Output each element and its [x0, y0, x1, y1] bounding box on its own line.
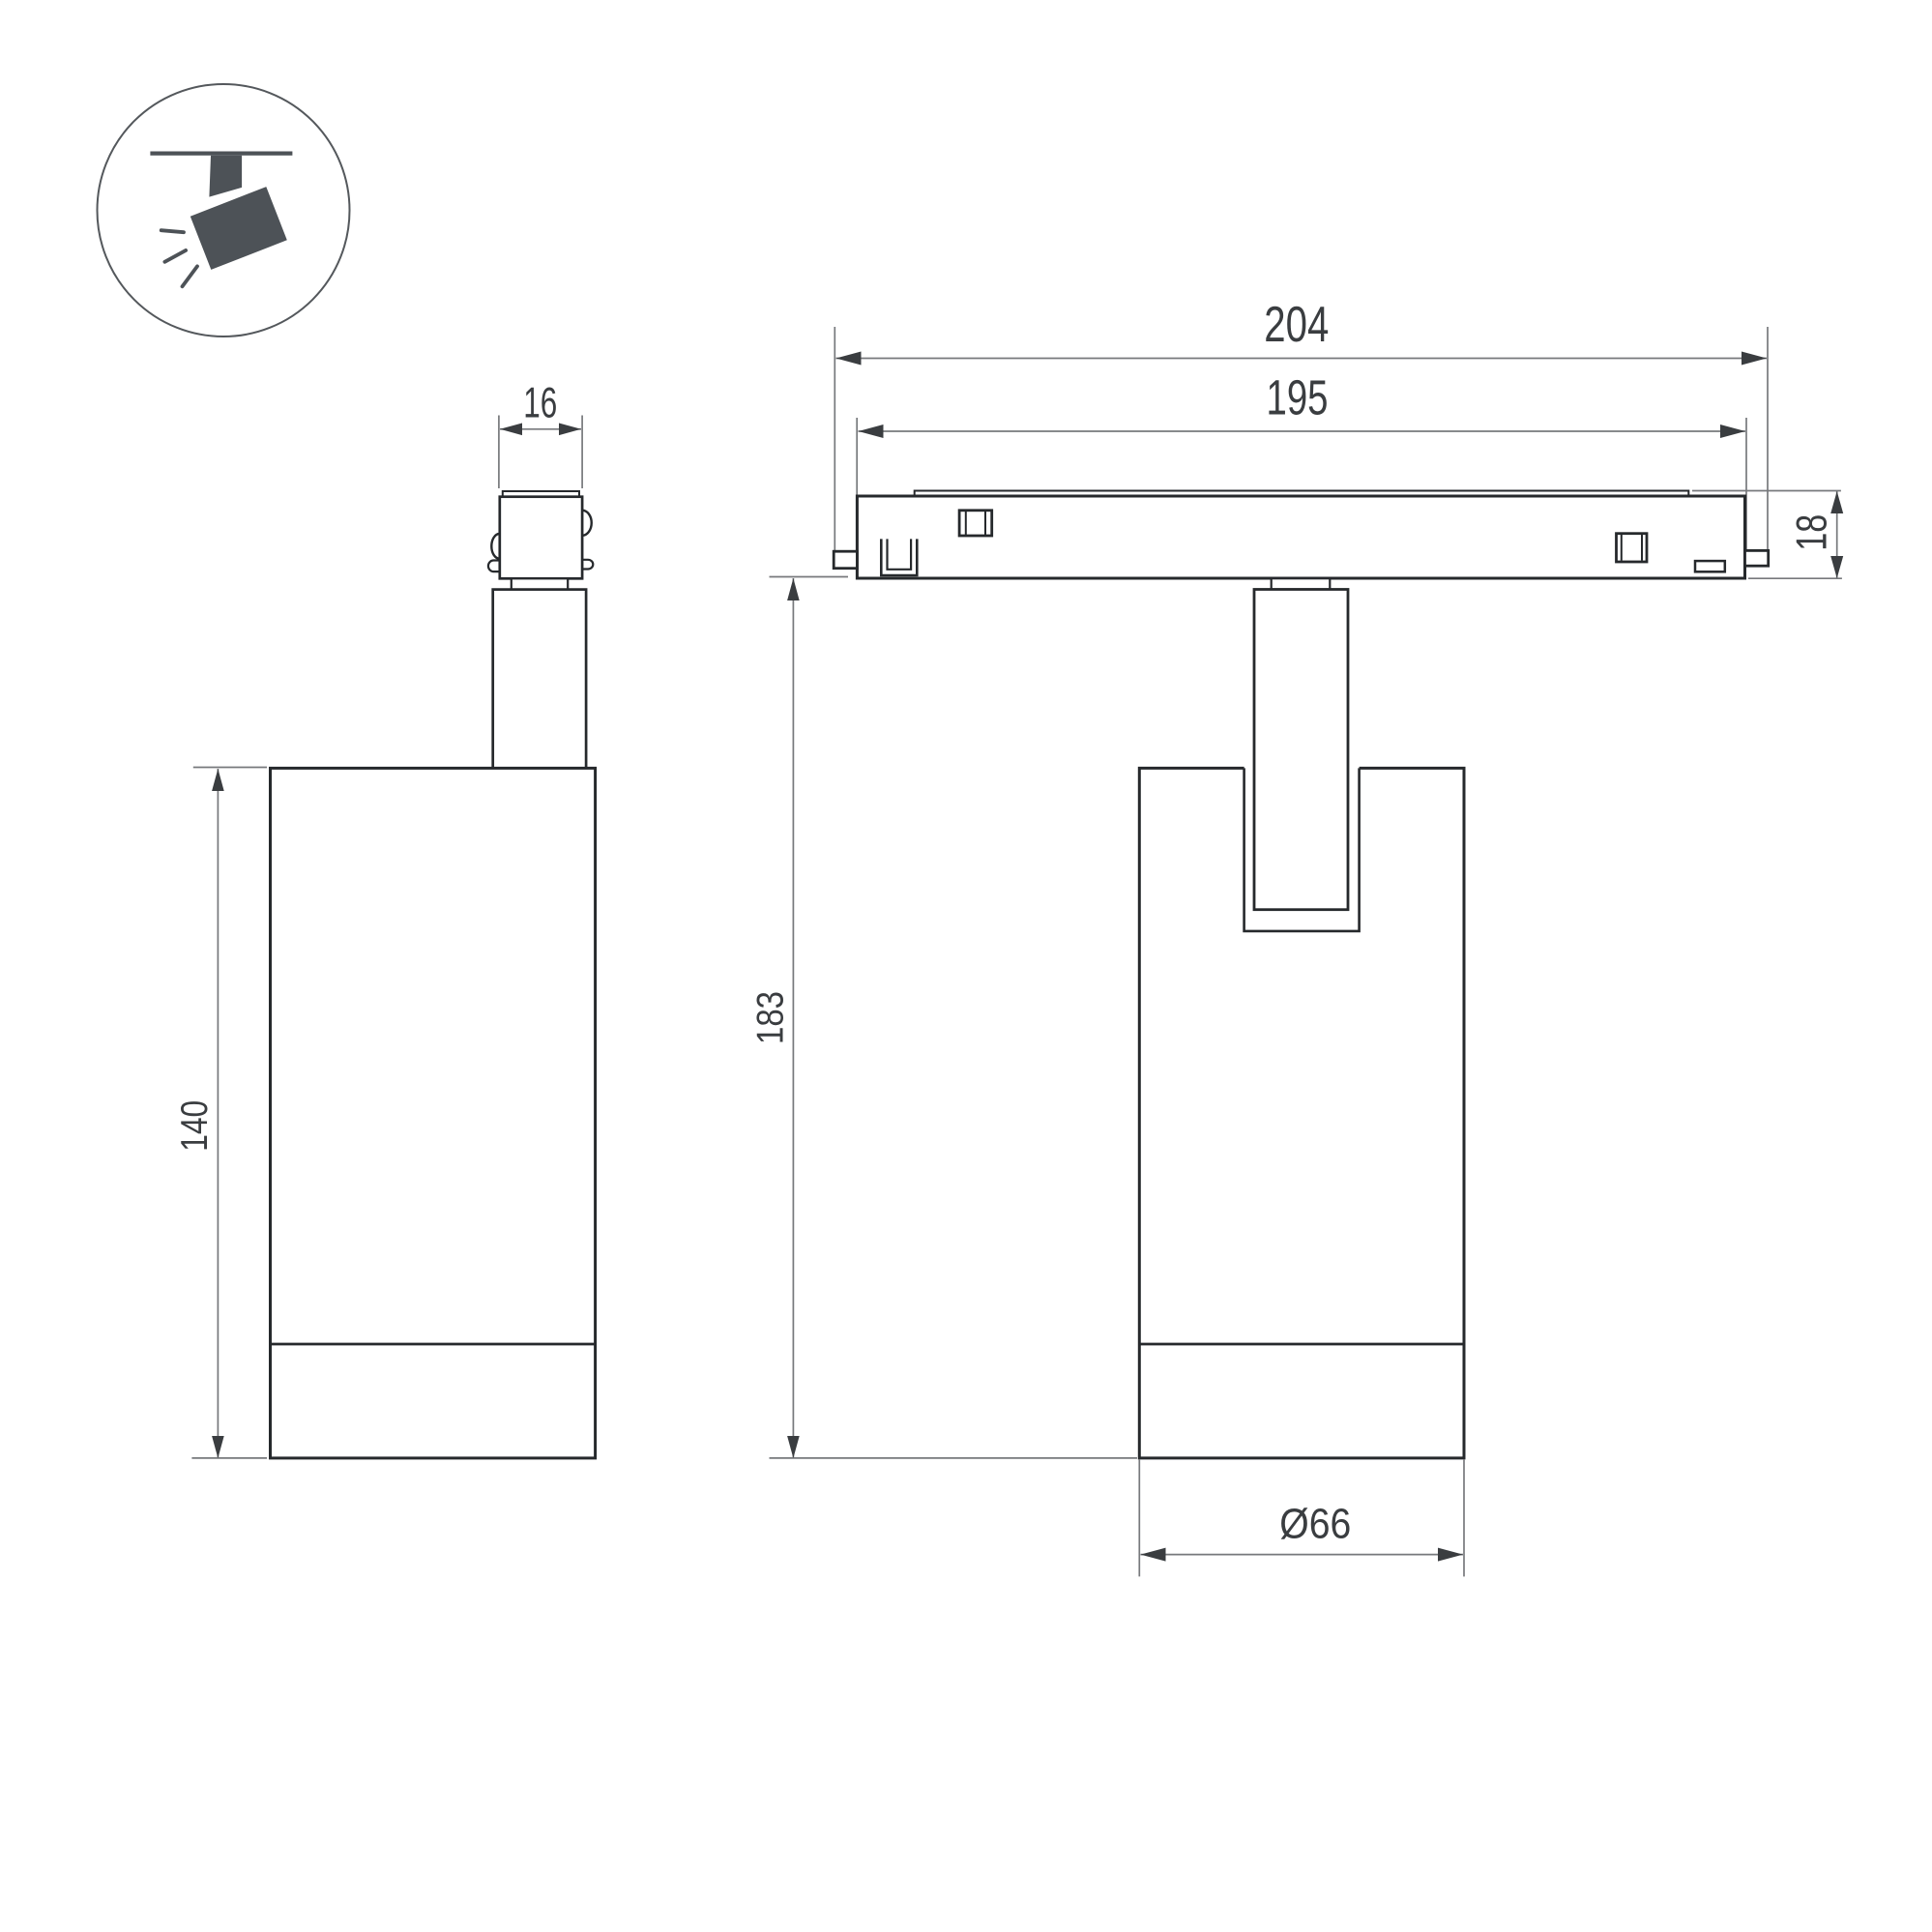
svg-text:Ø66: Ø66: [1279, 1501, 1351, 1548]
svg-text:16: 16: [523, 380, 557, 427]
svg-text:140: 140: [174, 1100, 216, 1152]
svg-text:18: 18: [1788, 514, 1835, 551]
svg-text:195: 195: [1267, 370, 1329, 425]
svg-text:204: 204: [1264, 296, 1329, 352]
svg-text:183: 183: [749, 991, 791, 1044]
